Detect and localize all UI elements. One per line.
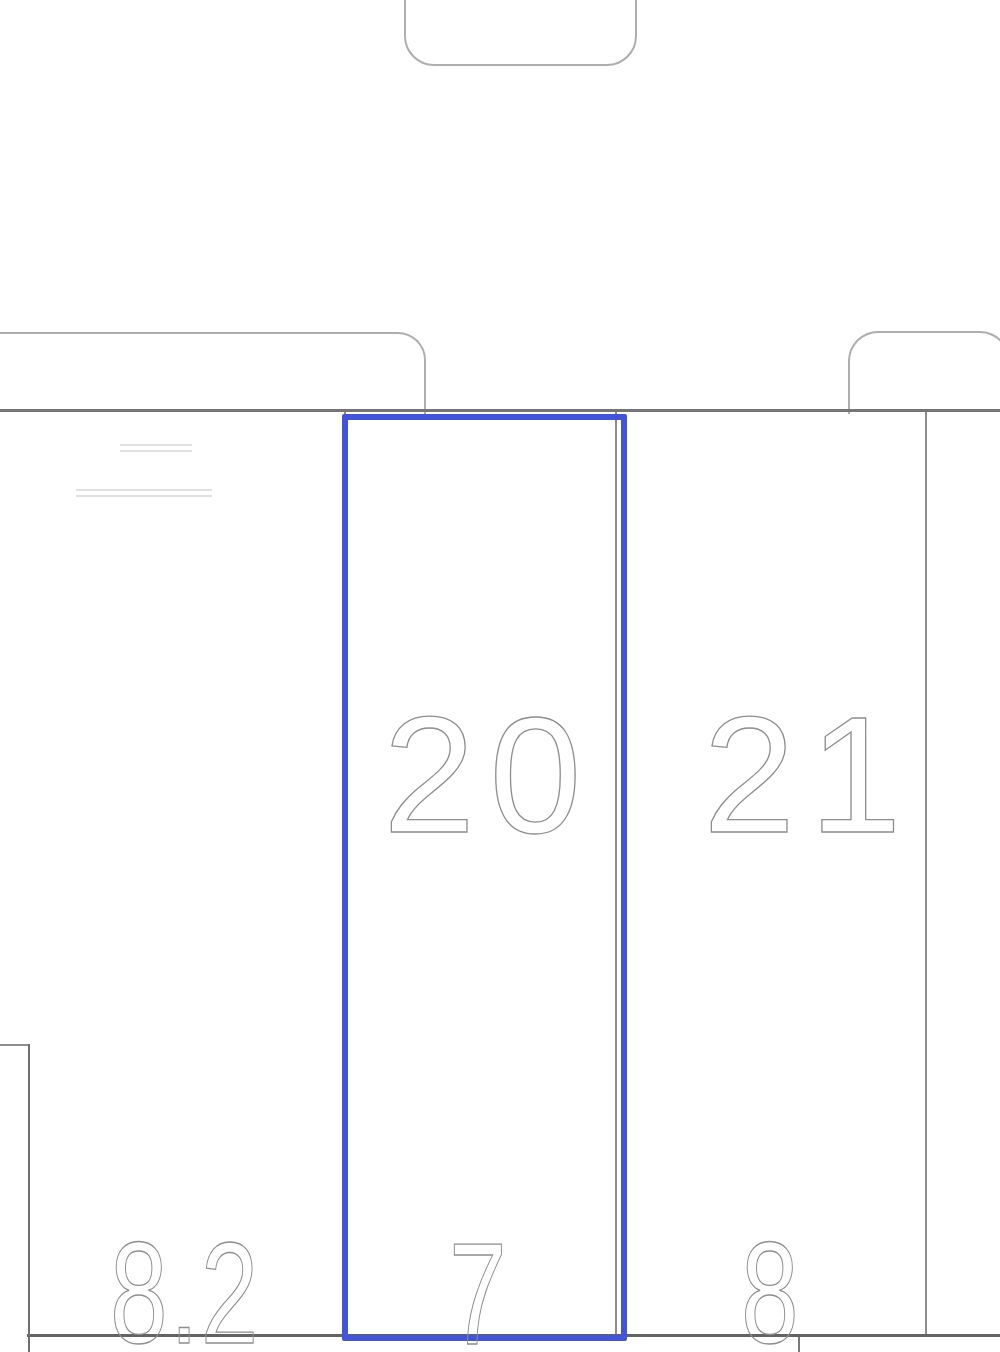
selected-space-outline[interactable]: [342, 414, 627, 1341]
left-structure-outline: [0, 332, 426, 414]
upper-stall-outline: [404, 0, 637, 66]
faint-marking-line: [76, 495, 212, 497]
stall-divider-right: [925, 412, 927, 1335]
step-edge-vertical: [28, 1044, 30, 1352]
lower-divider: [798, 1337, 800, 1352]
dimension-label-8-2: 8.2: [110, 1222, 261, 1352]
space-21-region[interactable]: [617, 412, 925, 1334]
right-stall-outline: [848, 331, 1000, 414]
faint-marking-line: [76, 489, 212, 491]
step-edge-horizontal: [0, 1044, 30, 1046]
faint-marking-line: [120, 450, 192, 452]
faint-marking-line: [120, 444, 192, 446]
floor-plan-canvas: 20 21 8.2 7 8: [0, 0, 1000, 1352]
